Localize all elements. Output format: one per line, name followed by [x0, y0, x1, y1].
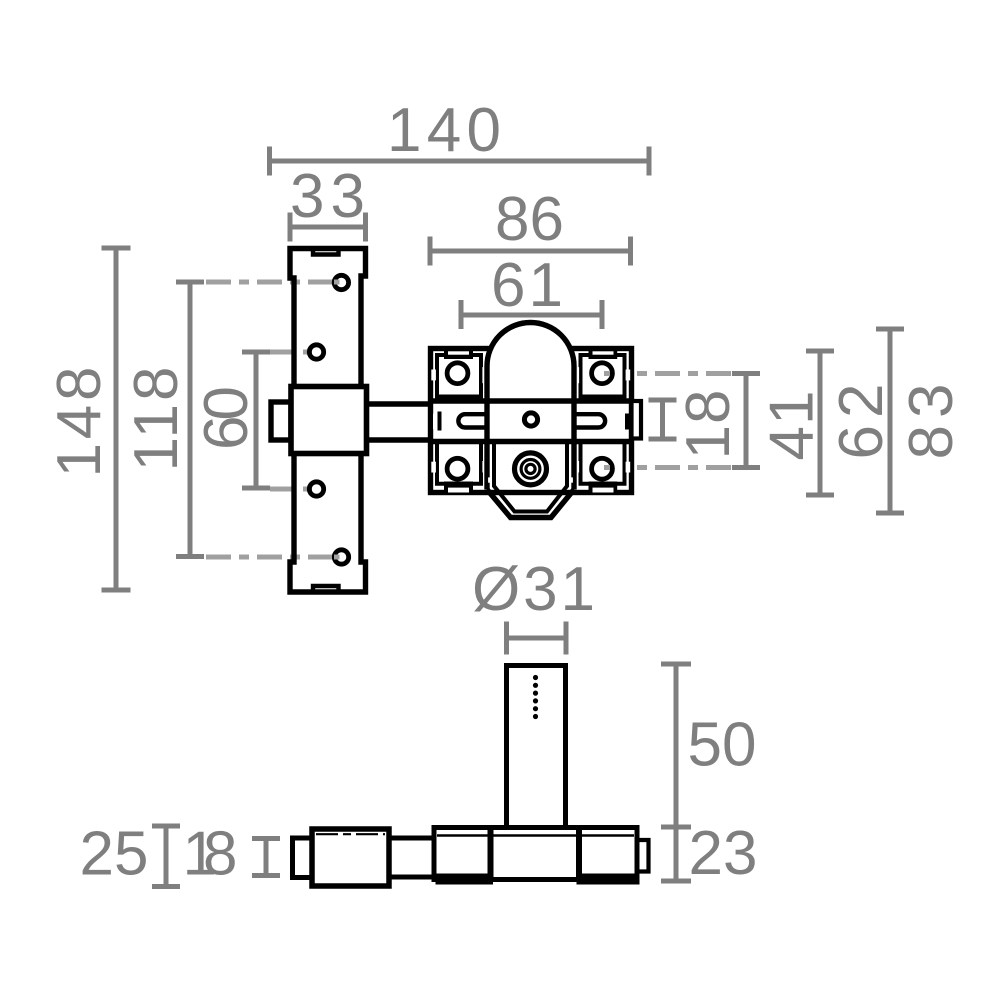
svg-text:18: 18 [674, 390, 743, 460]
svg-text:25: 25 [80, 820, 149, 889]
svg-text:60: 60 [192, 386, 261, 450]
svg-text:140: 140 [387, 96, 501, 165]
svg-text:148: 148 [45, 367, 114, 478]
svg-text:18: 18 [183, 820, 238, 889]
svg-text:23: 23 [689, 819, 758, 888]
svg-text:50: 50 [688, 711, 757, 780]
svg-text:Ø31: Ø31 [472, 555, 595, 624]
svg-text:118: 118 [122, 367, 191, 472]
svg-text:41: 41 [758, 391, 827, 461]
svg-text:86: 86 [495, 185, 564, 254]
